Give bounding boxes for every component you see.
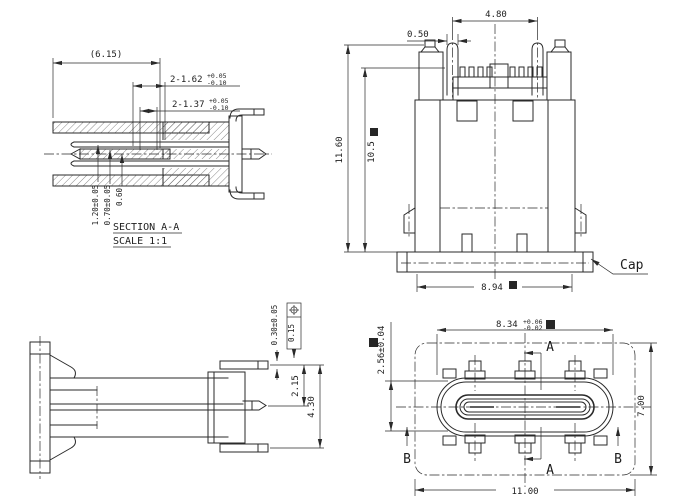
dim-0-30-label: 0.30±0.05 [270, 305, 279, 346]
engineering-drawing-sheet: (6.15) 2-1.62 +0.05 -0.10 2-1.37 +0.05 -… [0, 0, 690, 500]
position-tolerance-icon [289, 305, 299, 315]
section-aa-view: (6.15) 2-1.62 +0.05 -0.10 2-1.37 +0.05 -… [44, 50, 272, 247]
dim-10-5-label: 10.5 [367, 141, 377, 163]
mount-post-left [419, 40, 443, 100]
dim-8-94-label: 8.94 [481, 283, 503, 293]
pin-center [243, 401, 266, 410]
gdt-value-label: 0.15 [287, 324, 296, 342]
front-view: Cap 4.80 0.50 11.60 10.5 [335, 10, 648, 293]
gdt-position-frame: 0.15 [287, 303, 301, 358]
dim-2-15-label: 2.15 [291, 375, 301, 397]
cap-label: Cap [620, 258, 644, 273]
foot-right [517, 234, 527, 252]
section-scale: SCALE 1:1 [113, 236, 167, 247]
section-a-top-label: A [546, 340, 554, 355]
dim-8-34-label: 8.34 [496, 320, 518, 330]
dim-slot-1-62-tol-minus: -0.10 [207, 79, 227, 87]
solder-leg-bottom [230, 187, 264, 199]
side-view: 0.30±0.05 0.15 2.15 4.30 [30, 303, 324, 479]
dim-slot-1-37-label: 2-1.37 [172, 100, 205, 110]
front-body-linework [397, 24, 593, 280]
side-flange-right [575, 204, 586, 238]
dim-height-11-60: 11.60 [335, 45, 424, 252]
pin-bottom [220, 444, 268, 452]
mount-post-right [547, 40, 571, 100]
dim-8-34-tol-minus: -0.02 [523, 324, 543, 332]
dim-overall-label: (6.15) [90, 50, 123, 60]
section-title-block: SECTION A-A SCALE 1:1 [113, 222, 182, 247]
dim-pin-0-30: 0.30±0.05 [270, 305, 279, 380]
dim-slot-1-62-label: 2-1.62 [170, 75, 203, 85]
dim-0-70-label: 0.70±0.05 [103, 185, 112, 226]
dim-shell-height-2-56: 2.56±0.04 [369, 322, 448, 431]
critical-dim-marker [546, 320, 555, 329]
body-window-right [513, 101, 533, 121]
cap-callout: Cap [591, 258, 648, 274]
foot-left [462, 234, 472, 252]
dim-4-80-label: 4.80 [485, 10, 507, 20]
dim-height-10-5: 10.5 [361, 68, 445, 252]
dim-pin-width-0-50: 0.50 [407, 30, 471, 45]
dim-slot-1-37-tol-minus: -0.10 [209, 104, 229, 112]
side-body-linework [30, 336, 268, 479]
top-view: A A B B 8.34 +0.06 -0.02 2.56±0.04 [369, 318, 657, 497]
section-shell-linework [44, 109, 272, 199]
dim-11-00-label: 11.00 [511, 487, 538, 497]
dim-cap-width-8-94: 8.94 [417, 274, 572, 293]
drawing-svg: (6.15) 2-1.62 +0.05 -0.10 2-1.37 +0.05 -… [0, 0, 690, 500]
dim-0-50-label: 0.50 [407, 30, 429, 40]
side-flange-left [404, 204, 415, 238]
dim-7-00-label: 7.00 [637, 395, 647, 417]
dim-0-60-label: 0.60 [115, 187, 124, 206]
section-a-bottom-label: A [546, 463, 554, 478]
section-title: SECTION A-A [113, 222, 179, 233]
dim-1-20-label: 1.20±0.05 [91, 185, 100, 226]
dim-2-56-label: 2.56±0.04 [377, 326, 387, 375]
contact-teeth-row [453, 64, 547, 100]
critical-dim-marker [370, 128, 378, 136]
section-b-left-label: B [403, 452, 411, 467]
critical-dim-marker [509, 281, 517, 289]
section-b-right-label: B [614, 452, 622, 467]
dim-4-30-label: 4.30 [307, 396, 317, 418]
body-window-left [457, 101, 477, 121]
pin-top [220, 361, 268, 369]
dim-body-height-7-00: 7.00 [630, 343, 657, 475]
section-cut-b: B B [403, 427, 622, 467]
dim-11-60-label: 11.60 [335, 136, 345, 163]
